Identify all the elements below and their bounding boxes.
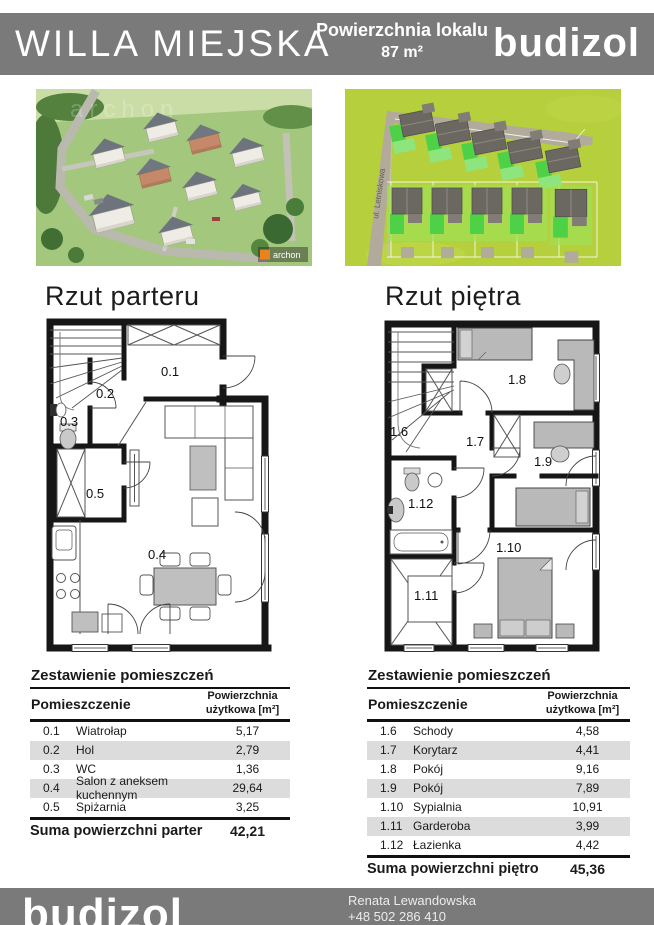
row-name: Korytarz: [413, 743, 545, 757]
row-area: 2,79: [205, 743, 290, 757]
row-area: 3,99: [545, 819, 630, 833]
row-area: 5,17: [205, 724, 290, 738]
column-header-area: Powierzchnia użytkowa [m²]: [195, 690, 290, 718]
row-area: 9,16: [545, 762, 630, 776]
bathroom-fixtures: [388, 468, 452, 554]
row-number: 1.7: [367, 743, 413, 757]
table-row: 0.2 Hol 2,79: [30, 741, 290, 760]
row-name: Pokój: [413, 781, 545, 795]
row-name: Sypialnia: [413, 800, 545, 814]
svg-text:archon: archon: [273, 250, 301, 260]
open-boundary: [118, 402, 146, 446]
row-number: 0.4: [30, 781, 76, 795]
pantry-wardrobe: [57, 449, 139, 517]
floor-plan-upper: 1.6 1.7 1.8 1.9 1.10 1.11 1.12: [382, 318, 612, 654]
estate-render-illustration: archon: [36, 89, 312, 266]
room-label: 1.7: [466, 434, 484, 449]
row-number: 1.6: [367, 724, 413, 738]
floor-plan-title-upper: Rzut piętra: [385, 281, 521, 312]
archon-logo-icon: [260, 250, 270, 260]
area-value: 87 m²: [302, 44, 502, 62]
row-number: 1.11: [367, 819, 413, 833]
row-area: 4,58: [545, 724, 630, 738]
area-block: Powierzchnia lokalu 87 m²: [302, 20, 502, 62]
row-name: Wiatrołap: [76, 724, 205, 738]
room-table-ground: Zestawienie pomieszczeń Pomieszczenie Po…: [30, 666, 290, 839]
row-number: 0.3: [30, 762, 76, 776]
table-row: 1.8 Pokój 9,16: [367, 760, 630, 779]
row-name: Spiżarnia: [76, 800, 205, 814]
row-number: 1.8: [367, 762, 413, 776]
row-number: 1.12: [367, 838, 413, 852]
room-table-upper: Zestawienie pomieszczeń Pomieszczenie Po…: [367, 666, 630, 877]
table-row: 1.6 Schody 4,58: [367, 722, 630, 741]
brand-logo: budizol: [493, 21, 640, 66]
room-label: 1.6: [390, 424, 408, 439]
row-area: 7,89: [545, 781, 630, 795]
table-row: 1.9 Pokój 7,89: [367, 779, 630, 798]
column-header-room: Pomieszczenie: [367, 696, 468, 712]
row-name: Pokój: [413, 762, 545, 776]
row-number: 0.1: [30, 724, 76, 738]
footer-brand-logo: budizol: [22, 890, 183, 925]
row-number: 1.9: [367, 781, 413, 795]
row-area: 3,25: [205, 800, 290, 814]
page-title: WILLA MIEJSKA: [15, 23, 332, 65]
total-label: Suma powierzchni parter: [30, 823, 205, 839]
floor-plan-ground: 0.1 0.2 0.3 0.4 0.5: [44, 316, 276, 654]
room-label: 1.12: [408, 496, 433, 511]
footer-bar: budizol Renata Lewandowska +48 502 286 4…: [0, 888, 654, 925]
total-row: Suma powierzchni parter 42,21: [30, 817, 290, 839]
room-label: 0.4: [148, 547, 166, 562]
table-row: 1.7 Korytarz 4,41: [367, 741, 630, 760]
table-row: 0.4 Salon z aneksem kuchennym 29,64: [30, 779, 290, 798]
bed-single-1-8: [458, 328, 532, 360]
archon-watermark: archon: [258, 247, 308, 262]
row-area: 10,91: [545, 800, 630, 814]
desk-1-8: [554, 340, 594, 410]
table-row: 1.10 Sypialnia 10,91: [367, 798, 630, 817]
page: WILLA MIEJSKA Powierzchnia lokalu 87 m² …: [0, 0, 654, 925]
row-number: 0.2: [30, 743, 76, 757]
contact-phone: +48 502 286 410: [348, 909, 476, 925]
sofa: [165, 406, 253, 526]
contact-block: Renata Lewandowska +48 502 286 410: [348, 893, 476, 925]
room-label: 0.1: [161, 364, 179, 379]
column-header-room: Pomieszczenie: [30, 696, 131, 712]
bed-single-1-9: [516, 488, 590, 526]
contact-name: Renata Lewandowska: [348, 893, 476, 909]
row-name: Schody: [413, 724, 545, 738]
total-label: Suma powierzchni piętro: [367, 861, 545, 877]
area-label: Powierzchnia lokalu: [302, 20, 502, 41]
header-bar: WILLA MIEJSKA Powierzchnia lokalu 87 m² …: [0, 13, 654, 75]
row-number: 1.10: [367, 800, 413, 814]
room-label: 0.2: [96, 386, 114, 401]
room-label: 1.9: [534, 454, 552, 469]
room-label: 0.3: [60, 414, 78, 429]
table-header: Pomieszczenie Powierzchnia użytkowa [m²]: [30, 689, 290, 722]
table-row: 0.1 Wiatrołap 5,17: [30, 722, 290, 741]
row-area: 29,64: [205, 781, 290, 795]
room-label: 1.8: [508, 372, 526, 387]
row-number: 0.5: [30, 800, 76, 814]
table-title: Zestawienie pomieszczeń: [367, 666, 630, 689]
coffee-table: [190, 446, 216, 490]
table-header: Pomieszczenie Powierzchnia użytkowa [m²]: [367, 689, 630, 722]
site-plan-illustration: ul. Letniskowa: [345, 89, 621, 266]
table-title: Zestawienie pomieszczeń: [30, 666, 290, 689]
room-labels-ground: 0.1 0.2 0.3 0.4 0.5: [60, 364, 179, 562]
row-name: Salon z aneksem kuchennym: [76, 774, 205, 802]
row-name: Łazienka: [413, 838, 545, 852]
dining-table: [140, 553, 231, 620]
total-value: 42,21: [205, 823, 290, 839]
row-area: 4,42: [545, 838, 630, 852]
total-value: 45,36: [545, 861, 630, 877]
site-plan-image: ul. Letniskowa: [345, 89, 621, 266]
row-name: Hol: [76, 743, 205, 757]
wardrobe: [128, 325, 220, 345]
room-label: 1.11: [414, 588, 438, 603]
room-label: 0.5: [86, 486, 104, 501]
kitchen: [52, 520, 122, 634]
bed-double-1-10: [474, 558, 574, 638]
table-row: 0.5 Spiżarnia 3,25: [30, 798, 290, 817]
total-row: Suma powierzchni piętro 45,36: [367, 855, 630, 877]
floor-plan-title-ground: Rzut parteru: [45, 281, 200, 312]
table-row: 1.11 Garderoba 3,99: [367, 817, 630, 836]
row-area: 4,41: [545, 743, 630, 757]
table-row: 1.12 Łazienka 4,42: [367, 836, 630, 855]
column-header-area: Powierzchnia użytkowa [m²]: [535, 690, 630, 718]
row-area: 1,36: [205, 762, 290, 776]
side-table: [192, 498, 218, 526]
room-label: 1.10: [496, 540, 521, 555]
estate-render-image: archon: [36, 89, 312, 266]
row-name: Garderoba: [413, 819, 545, 833]
